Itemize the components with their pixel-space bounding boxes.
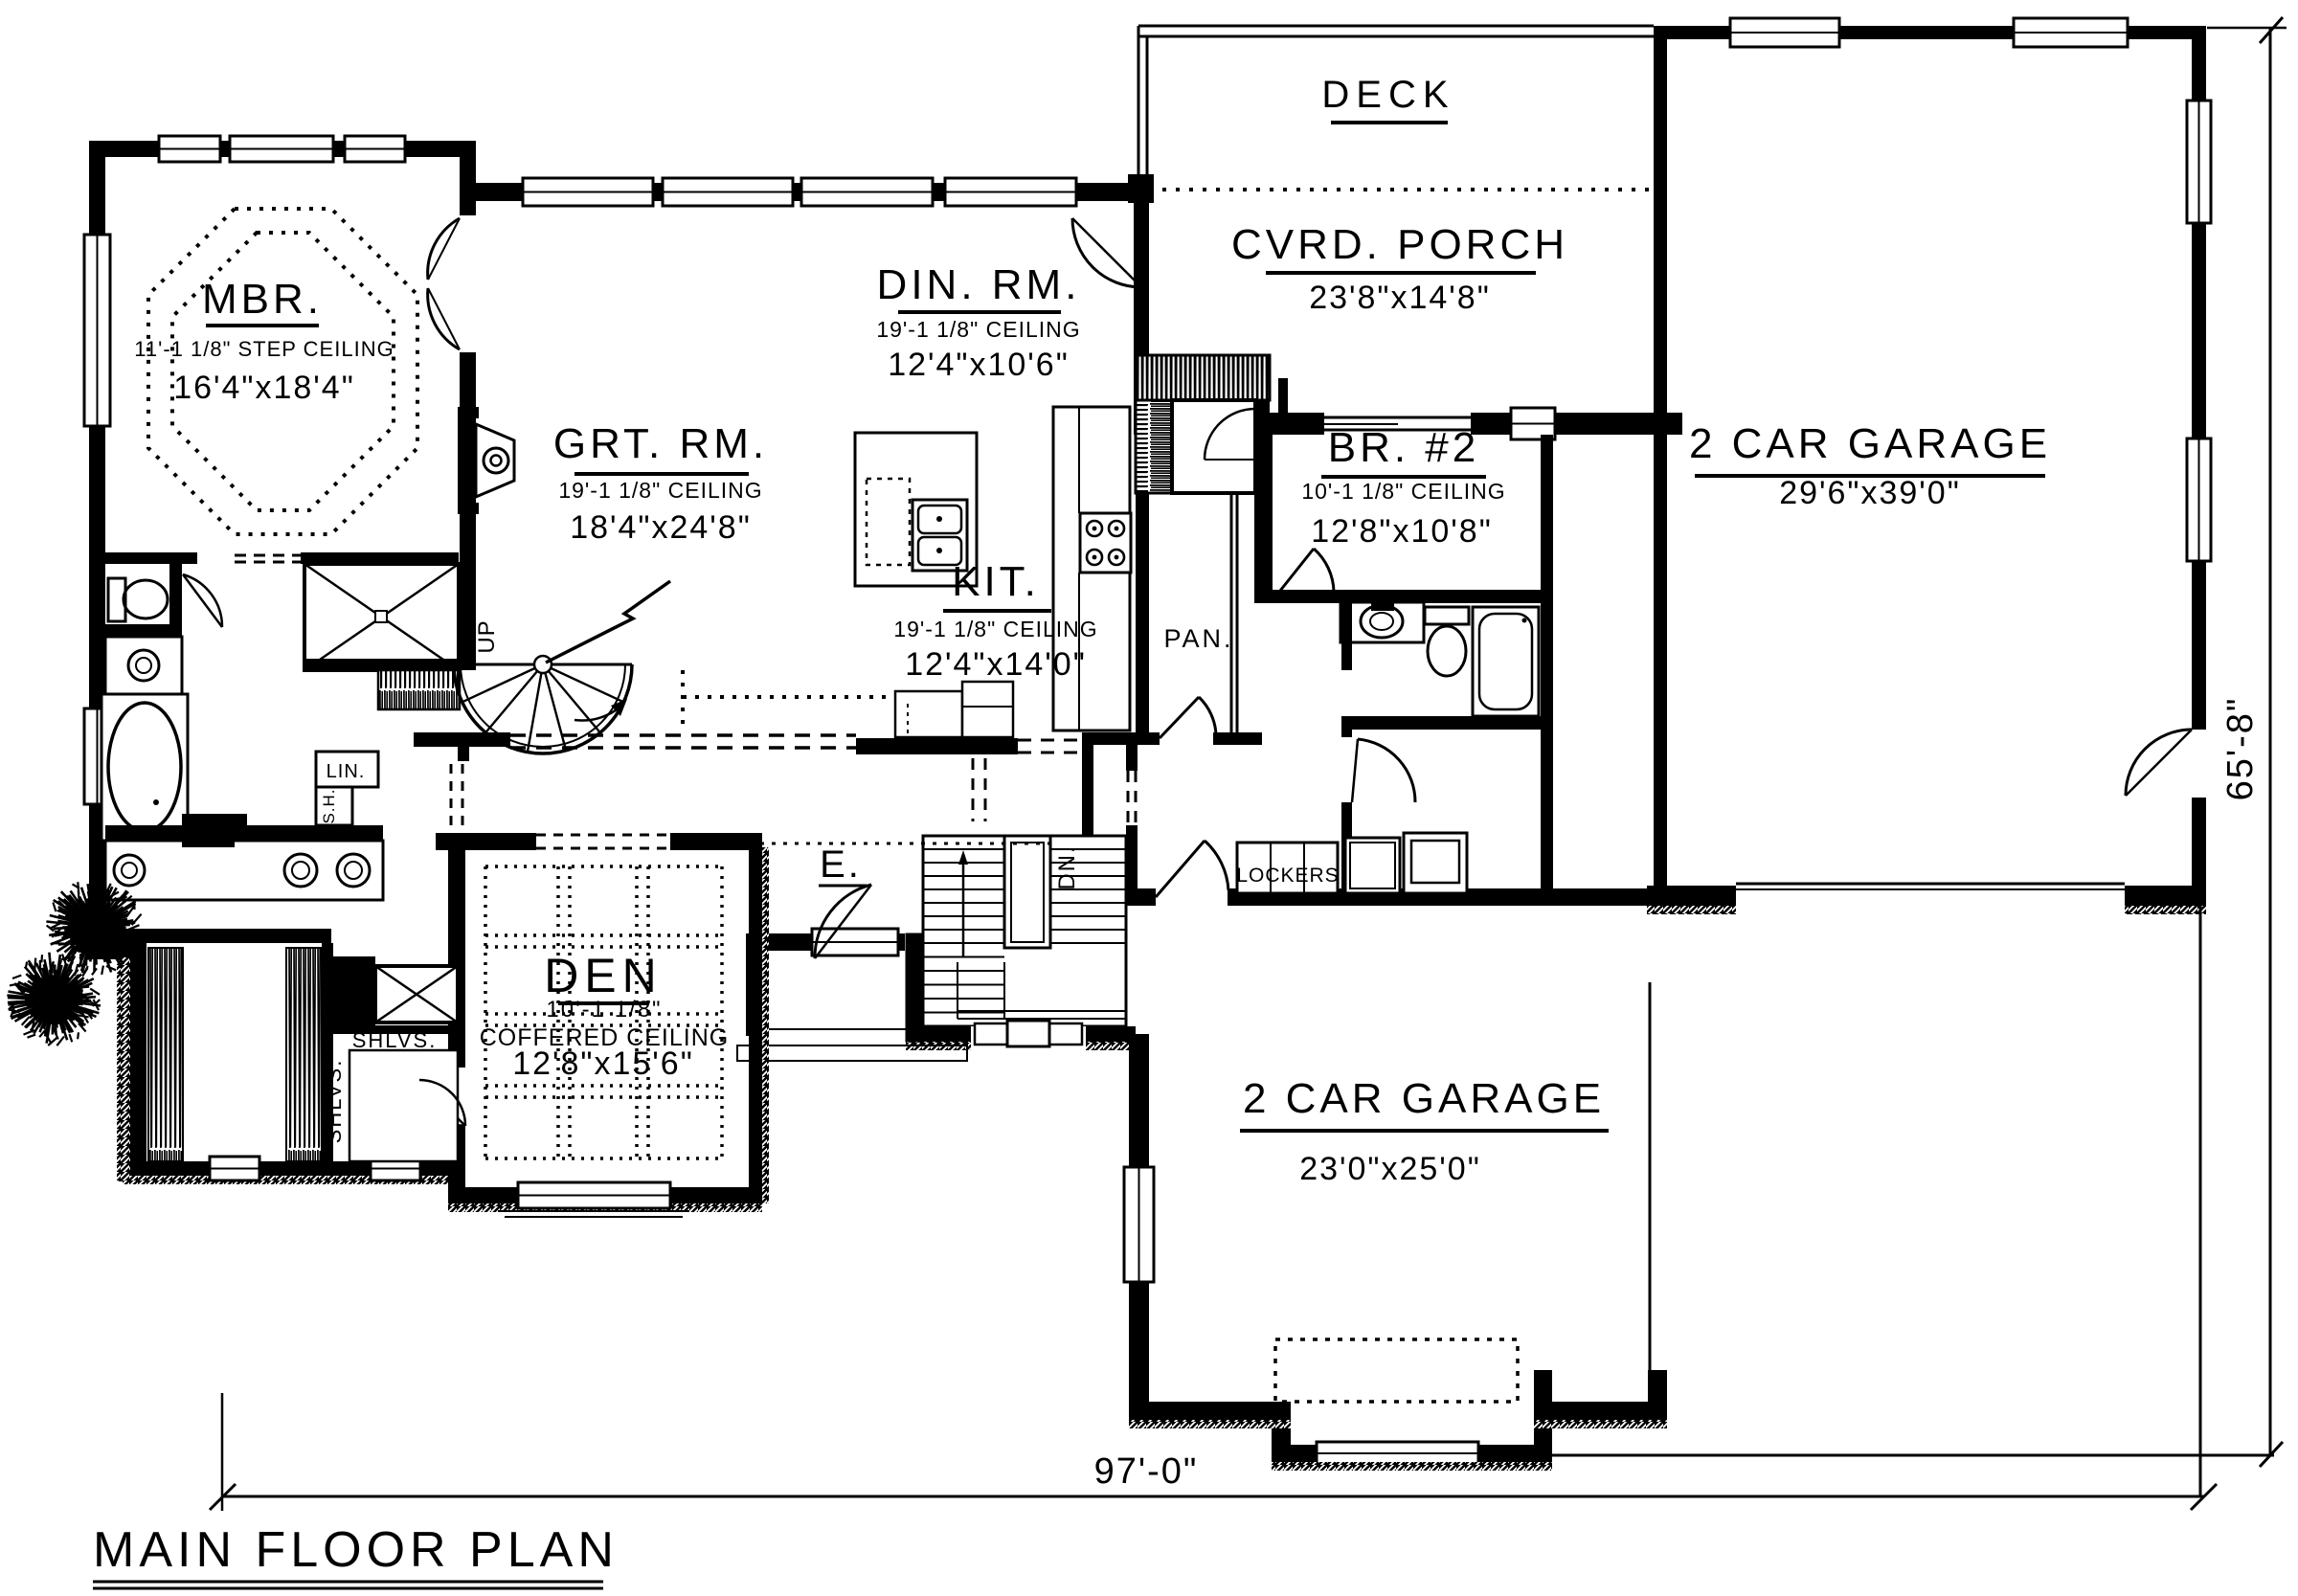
- svg-text:LOCKERS: LOCKERS: [1236, 865, 1339, 887]
- svg-text:S.H.: S.H.: [320, 788, 338, 823]
- svg-text:MBR.: MBR.: [202, 276, 323, 323]
- svg-text:23'8"x14'8": 23'8"x14'8": [1309, 280, 1491, 316]
- svg-text:DECK: DECK: [1321, 74, 1454, 116]
- svg-text:MAIN FLOOR PLAN: MAIN FLOOR PLAN: [93, 1522, 619, 1578]
- svg-text:DEN: DEN: [544, 949, 663, 1002]
- svg-text:BR. #2: BR. #2: [1328, 424, 1480, 471]
- svg-text:12'4"x10'6": 12'4"x10'6": [888, 347, 1070, 383]
- svg-text:12'4"x14'0": 12'4"x14'0": [905, 646, 1087, 683]
- svg-text:18'4"x24'8": 18'4"x24'8": [570, 509, 752, 546]
- svg-text:GRT. RM.: GRT. RM.: [553, 420, 768, 467]
- svg-text:19'-1 1/8" CEILING: 19'-1 1/8" CEILING: [558, 478, 762, 503]
- svg-text:12'8"x10'8": 12'8"x10'8": [1311, 513, 1493, 550]
- svg-text:19'-1 1/8" CEILING: 19'-1 1/8" CEILING: [893, 617, 1097, 641]
- svg-text:16'4"x18'4": 16'4"x18'4": [173, 370, 355, 406]
- svg-text:10'-1 1/8": 10'-1 1/8": [546, 997, 662, 1023]
- svg-text:CVRD. PORCH: CVRD. PORCH: [1231, 221, 1568, 268]
- svg-text:65'-8": 65'-8": [2220, 697, 2261, 801]
- svg-text:2 CAR GARAGE: 2 CAR GARAGE: [1689, 420, 2051, 467]
- svg-text:19'-1 1/8" CEILING: 19'-1 1/8" CEILING: [876, 317, 1080, 342]
- svg-text:PAN.: PAN.: [1163, 624, 1233, 653]
- svg-text:SHLVS.: SHLVS.: [322, 1059, 346, 1144]
- svg-text:29'6"x39'0": 29'6"x39'0": [1779, 475, 1961, 511]
- svg-text:KIT.: KIT.: [952, 558, 1040, 605]
- svg-text:12'8"x15'6": 12'8"x15'6": [512, 1045, 694, 1082]
- svg-text:10'-1 1/8" CEILING: 10'-1 1/8" CEILING: [1301, 479, 1505, 504]
- svg-text:DN.: DN.: [1054, 844, 1080, 889]
- svg-text:UP: UP: [474, 619, 500, 653]
- svg-text:SHLVS.: SHLVS.: [352, 1028, 438, 1052]
- svg-text:DIN. RM.: DIN. RM.: [877, 261, 1081, 308]
- svg-text:11'-1 1/8" STEP CEILING: 11'-1 1/8" STEP CEILING: [134, 337, 394, 361]
- svg-text:E.: E.: [820, 843, 862, 886]
- svg-text:23'0"x25'0": 23'0"x25'0": [1299, 1151, 1481, 1187]
- svg-text:97'-0": 97'-0": [1094, 1451, 1199, 1492]
- svg-text:2 CAR GARAGE: 2 CAR GARAGE: [1243, 1075, 1605, 1122]
- svg-text:LIN.: LIN.: [327, 761, 366, 782]
